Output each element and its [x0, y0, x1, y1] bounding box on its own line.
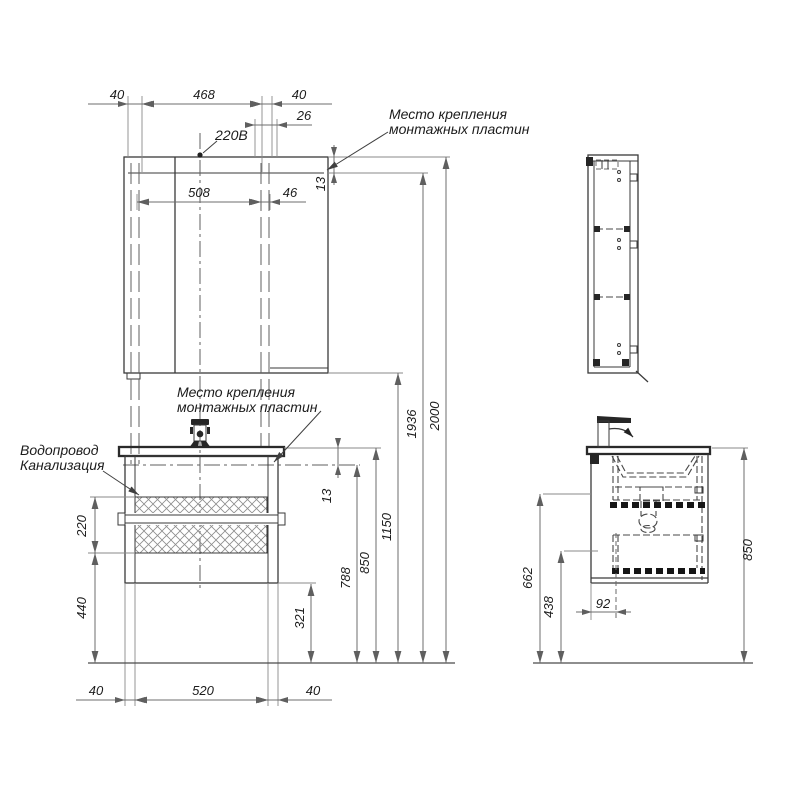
hinge: [630, 174, 637, 181]
drain: [640, 487, 663, 501]
dim-26: 26: [296, 108, 312, 123]
leader-mount-mid: [274, 411, 321, 462]
dim-top-40-left: 40: [110, 87, 125, 102]
upper-drawer: [613, 456, 700, 500]
dim-13-top: 13: [313, 176, 328, 191]
leader-mount-top: [327, 132, 388, 170]
mount-note-top-line1: Место крепления: [389, 106, 508, 122]
dim-bottom-40-left: 40: [89, 683, 104, 698]
dim-788: 788: [338, 566, 353, 588]
bottom-bracket: [127, 373, 140, 379]
lower-drawer: [613, 535, 700, 568]
sink-bowl: [612, 456, 699, 477]
front-rail-section: [590, 454, 599, 464]
water-supply-label: Водопровод: [20, 442, 99, 458]
sewerage-label: Канализация: [20, 457, 105, 473]
dim-662: 662: [520, 566, 535, 588]
spout: [609, 429, 633, 438]
dim-438: 438: [541, 595, 556, 617]
hinge: [630, 346, 637, 353]
dim-850: 850: [357, 551, 372, 573]
technical-drawing-page: 40 468 40 26 508 46 13 220 440 321 13 78…: [0, 0, 800, 800]
dim-bottom-520: 520: [192, 683, 214, 698]
dim-220: 220: [74, 514, 89, 537]
countertop: [119, 447, 284, 456]
vanity-installation-drawing: 40 468 40 26 508 46 13 220 440 321 13 78…: [0, 0, 800, 800]
power-label: 220В: [214, 127, 248, 143]
annotation-labels: 220В Место крепления монтажных пластин М…: [20, 106, 530, 473]
mount-note-mid-line1: Место крепления: [177, 384, 296, 400]
dim-508: 508: [188, 185, 210, 200]
dim-850-side: 850: [740, 538, 755, 560]
vanity-front-view: [118, 447, 285, 583]
dim-1936: 1936: [404, 409, 419, 439]
mirror-cabinet-front-view: [124, 157, 328, 379]
mirror-cabinet-side-view: [586, 155, 648, 382]
vanity-side-view: [587, 416, 710, 618]
dim-2000: 2000: [427, 401, 442, 432]
dim-top-468: 468: [193, 87, 215, 102]
leader-water: [103, 471, 139, 495]
leader-lines: [103, 132, 388, 495]
dim-bottom-40-right: 40: [306, 683, 321, 698]
mount-note-top-line2: монтажных пластин: [389, 121, 530, 137]
shelf-pin-holes: [618, 171, 621, 355]
power-point: [197, 152, 202, 157]
faucet-side: [597, 416, 633, 447]
mount-note-mid-line2: монтажных пластин: [177, 399, 318, 415]
dim-13-counter: 13: [319, 488, 334, 503]
dim-46: 46: [283, 185, 298, 200]
dim-440: 440: [74, 596, 89, 618]
dim-321: 321: [292, 607, 307, 629]
countertop-side: [587, 447, 710, 454]
dim-1150: 1150: [379, 512, 394, 541]
dim-92: 92: [596, 596, 611, 611]
hinge: [630, 241, 637, 248]
dim-top-40-right: 40: [292, 87, 307, 102]
